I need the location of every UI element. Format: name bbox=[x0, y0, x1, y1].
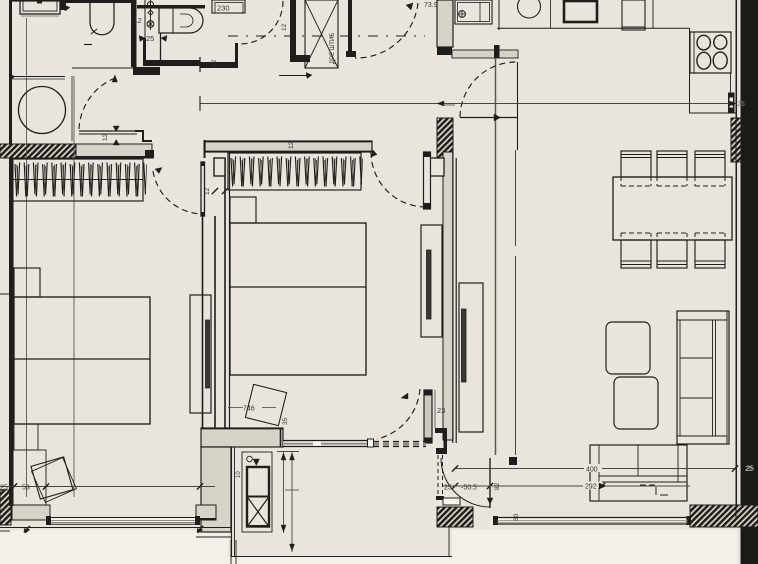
svg-text:12: 12 bbox=[204, 187, 211, 195]
svg-text:ДРЕ ШТИБ: ДРЕ ШТИБ bbox=[330, 33, 336, 64]
svg-text:292: 292 bbox=[585, 484, 597, 491]
svg-text:25: 25 bbox=[737, 101, 745, 108]
svg-text:25: 25 bbox=[146, 34, 154, 43]
svg-text:12: 12 bbox=[288, 141, 295, 149]
svg-text:12: 12 bbox=[211, 59, 218, 67]
svg-text:25: 25 bbox=[746, 466, 754, 473]
svg-text:400: 400 bbox=[586, 467, 598, 474]
svg-text:25: 25 bbox=[0, 485, 8, 492]
svg-text:73.9: 73.9 bbox=[424, 2, 438, 9]
svg-text:23: 23 bbox=[437, 406, 445, 415]
svg-text:746: 746 bbox=[243, 406, 255, 413]
svg-text:53: 53 bbox=[22, 485, 30, 492]
svg-text:12: 12 bbox=[281, 23, 288, 31]
svg-text:12: 12 bbox=[102, 133, 109, 141]
svg-text:60: 60 bbox=[513, 513, 520, 521]
svg-text:230: 230 bbox=[217, 4, 230, 13]
svg-text:10: 10 bbox=[236, 471, 242, 478]
svg-text:12: 12 bbox=[134, 18, 142, 25]
svg-text:35: 35 bbox=[282, 417, 289, 425]
